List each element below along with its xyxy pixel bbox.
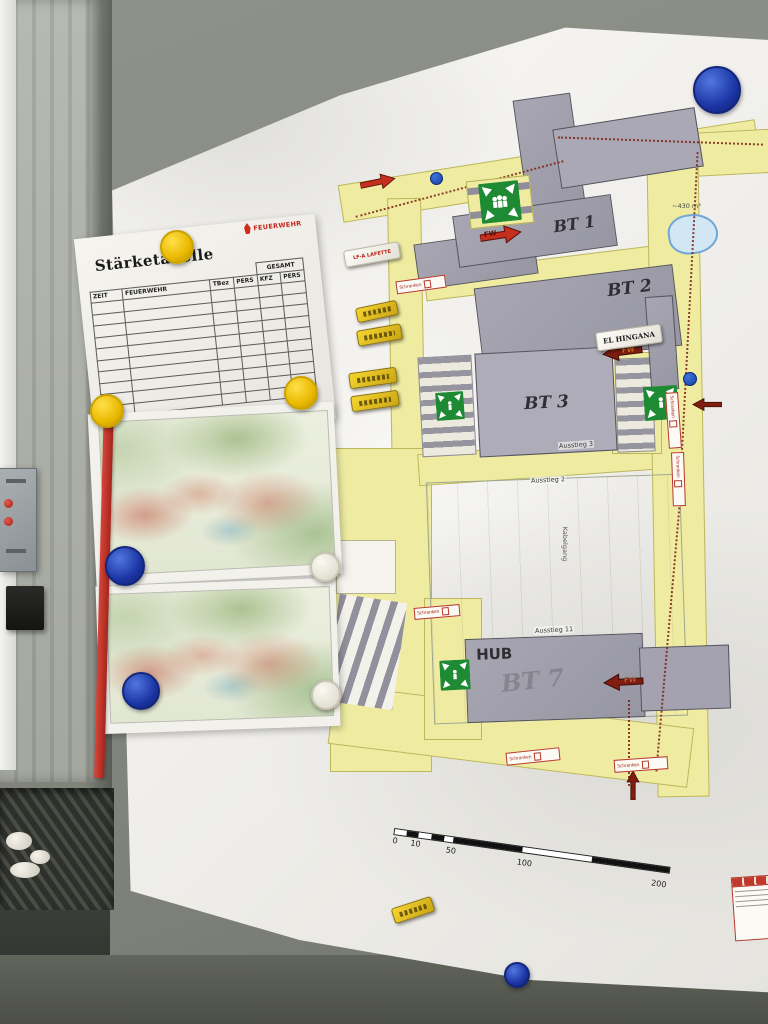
intercom-panel bbox=[0, 468, 37, 572]
intercom-button-icon bbox=[4, 517, 13, 526]
gate-label: Schranken bbox=[671, 452, 686, 506]
intercom-slot bbox=[6, 549, 26, 553]
magnet-white bbox=[311, 680, 341, 710]
wall-corner-highlight bbox=[0, 0, 16, 770]
parking-lot-white bbox=[336, 540, 396, 594]
flame-icon bbox=[243, 223, 252, 235]
building-label-bt7-handwritten: BT 7 bbox=[500, 663, 566, 698]
magnet-yellow bbox=[160, 230, 194, 264]
building-bt3: BT 3 bbox=[474, 346, 617, 457]
assembly-point-icon bbox=[478, 180, 522, 224]
magnet-yellow bbox=[284, 376, 318, 410]
scale-tick: 0 bbox=[392, 836, 398, 846]
scale-tick: 50 bbox=[445, 845, 456, 855]
letterbox bbox=[6, 586, 44, 630]
stone bbox=[6, 832, 32, 850]
pond-label: ~430 m³ bbox=[672, 202, 701, 210]
plan-title-block bbox=[731, 875, 768, 942]
fw-arrow-hub-icon bbox=[602, 671, 645, 693]
assembly-point-icon bbox=[435, 391, 465, 421]
intercom-slot bbox=[6, 479, 26, 483]
scale-tick: 10 bbox=[410, 838, 421, 848]
feuerwehr-logo-text: FEUERWEHR bbox=[253, 219, 302, 232]
magnet-yellow bbox=[90, 394, 124, 428]
hydrant-icon bbox=[683, 372, 697, 386]
stone bbox=[10, 862, 40, 878]
stone bbox=[30, 850, 50, 864]
corridor-label: Kabelgang bbox=[561, 527, 569, 561]
building-label-hub: HUB bbox=[476, 644, 513, 663]
arrow-bottom-up-icon bbox=[620, 770, 646, 800]
hydrant-icon bbox=[430, 172, 443, 185]
intercom-button-icon bbox=[4, 499, 13, 508]
feuerwehr-logo: FEUERWEHR bbox=[243, 217, 302, 234]
topo-map-sheet-2 bbox=[95, 578, 340, 734]
staerketabelle-body bbox=[91, 281, 317, 418]
assembly-point-icon bbox=[439, 659, 471, 691]
building-label-bt3: BT 3 bbox=[524, 392, 570, 414]
photo-of-plan-board: Kabelgang BT 1 BT 2 BT 3 HUB BT 7 ~430 m… bbox=[0, 0, 768, 1024]
fw-arrow-hub-label: FW bbox=[624, 676, 637, 685]
magnet-blue bbox=[693, 66, 741, 114]
magnet-blue bbox=[105, 546, 145, 586]
building-label-bt1: BT 1 bbox=[552, 212, 596, 237]
magnet-blue bbox=[504, 962, 530, 988]
arrow-right-edge-icon bbox=[692, 396, 722, 413]
magnet-blue bbox=[122, 672, 160, 710]
scale-tick: 200 bbox=[651, 878, 667, 889]
scale-tick: 100 bbox=[516, 857, 532, 868]
magnet-white bbox=[310, 552, 340, 582]
building-hub-annex bbox=[639, 644, 731, 711]
